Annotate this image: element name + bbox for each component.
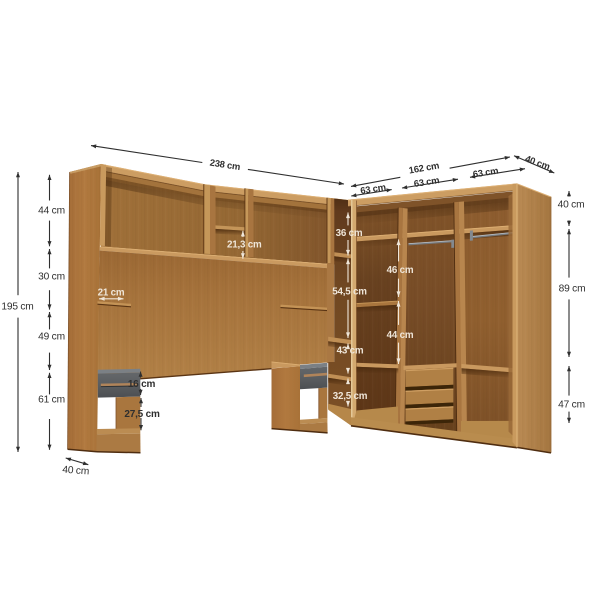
svg-text:44 cm: 44 cm — [387, 330, 414, 341]
svg-text:49 cm: 49 cm — [38, 332, 65, 343]
svg-text:40 cm: 40 cm — [62, 465, 89, 478]
svg-text:43 cm: 43 cm — [337, 346, 364, 357]
svg-text:47 cm: 47 cm — [558, 400, 585, 411]
svg-text:32,5 cm: 32,5 cm — [333, 391, 368, 402]
svg-text:44 cm: 44 cm — [38, 206, 65, 217]
svg-text:16 cm: 16 cm — [128, 379, 156, 390]
svg-text:21 cm: 21 cm — [98, 288, 125, 299]
svg-text:195 cm: 195 cm — [1, 302, 33, 313]
svg-text:61 cm: 61 cm — [38, 395, 65, 406]
svg-text:46 cm: 46 cm — [387, 265, 414, 276]
svg-text:36 cm: 36 cm — [336, 228, 363, 239]
svg-text:89 cm: 89 cm — [559, 284, 586, 295]
svg-text:30 cm: 30 cm — [38, 272, 65, 283]
svg-text:54,5 cm: 54,5 cm — [332, 287, 367, 298]
svg-text:27,5 cm: 27,5 cm — [124, 409, 160, 420]
svg-text:21,3 cm: 21,3 cm — [227, 240, 262, 251]
svg-text:40 cm: 40 cm — [558, 200, 585, 211]
